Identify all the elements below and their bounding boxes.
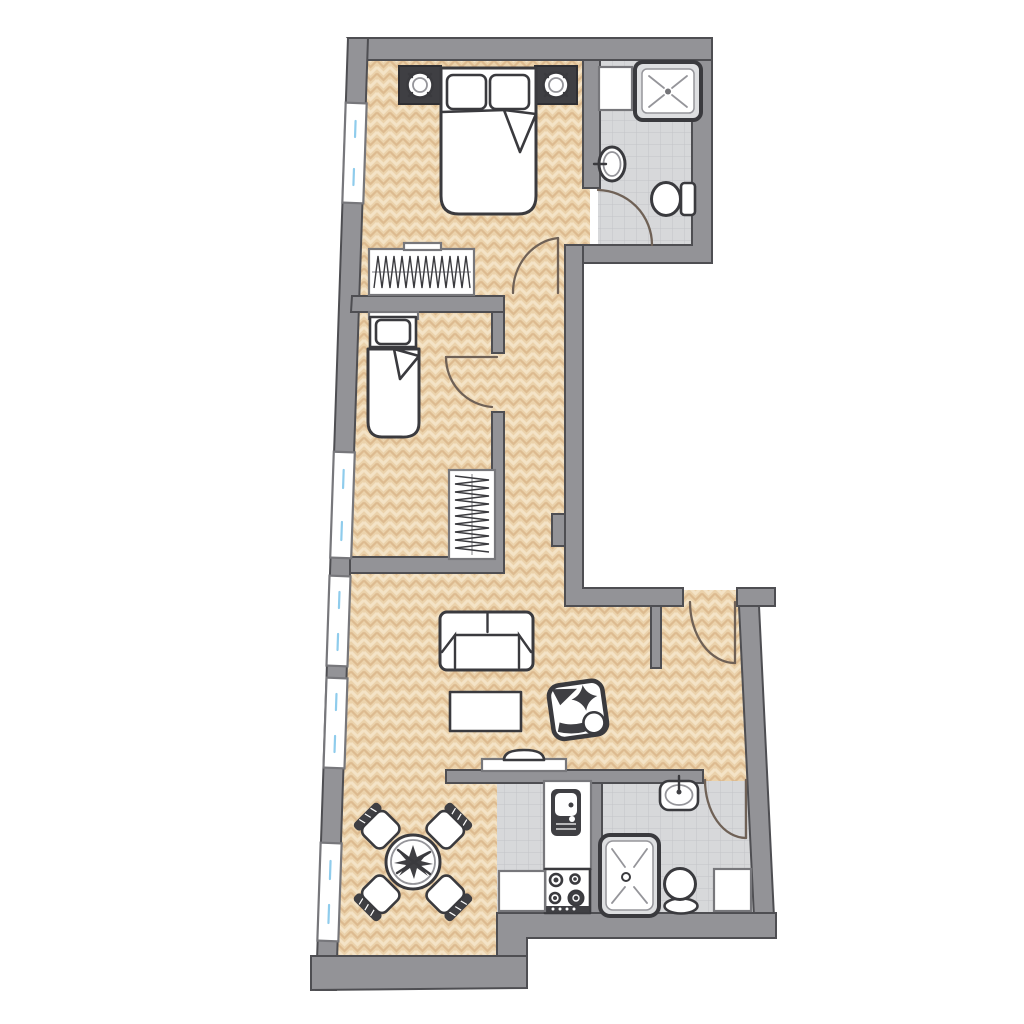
armchair <box>547 679 608 740</box>
bed-pillow-left <box>447 75 486 109</box>
window-glass-mark <box>343 470 344 488</box>
window-dining <box>317 843 341 942</box>
wall-bottom-living <box>311 956 527 990</box>
sink-drain <box>677 790 682 795</box>
bed-pillow-right <box>490 75 529 109</box>
burner-4 <box>569 891 584 906</box>
shower-drain <box>622 873 630 881</box>
stove <box>545 869 590 913</box>
sink-basin <box>555 793 577 816</box>
bed-pillow <box>376 320 410 344</box>
window-living-1 <box>326 576 350 667</box>
burner-2-center <box>573 877 577 881</box>
sink-drain <box>569 803 574 808</box>
window-living-2 <box>323 678 347 769</box>
stove-knob <box>552 908 555 911</box>
wall-hallway-east <box>565 245 683 606</box>
wardrobe-handle <box>404 243 441 250</box>
burner-3-center <box>553 896 557 900</box>
bathroom-cabinet <box>714 869 751 911</box>
sink-faucet <box>569 816 575 822</box>
tv-icon <box>504 750 544 760</box>
double-bed <box>441 68 536 214</box>
wall-bedroom2-east-stub <box>492 312 504 353</box>
wall-entry-partial <box>651 606 661 668</box>
nightstand-left <box>399 66 441 104</box>
window-glass-mark <box>338 634 339 650</box>
window-frame <box>323 678 347 769</box>
window-glass-mark <box>330 861 331 879</box>
stove-knob <box>559 908 562 911</box>
window-bedroom-2 <box>330 452 355 559</box>
floor-plan: Apartment floor plan <box>0 0 1024 1024</box>
wardrobe-bedroom-2 <box>449 470 495 559</box>
window-frame <box>317 843 341 942</box>
wall-top <box>348 38 712 60</box>
stove-knob <box>566 908 569 911</box>
sink-bottom-bathroom <box>660 776 698 810</box>
window-glass-mark <box>355 121 356 137</box>
shower-bottom-bathroom <box>600 835 659 916</box>
single-bed <box>368 312 419 437</box>
toilet-bowl <box>652 183 681 216</box>
window-glass-mark <box>336 694 337 710</box>
wall-hallway-pillar <box>552 514 565 546</box>
wall-bedroom1-bathroom-divider <box>583 60 600 188</box>
window-bedroom-1 <box>342 103 366 204</box>
toilet-top-bathroom <box>652 183 696 216</box>
toilet-bottom-bathroom <box>665 869 698 914</box>
window-frame <box>342 103 366 204</box>
window-frame <box>330 452 355 559</box>
window-glass-mark <box>353 169 354 185</box>
window-glass-mark <box>335 736 336 752</box>
shower <box>635 62 701 120</box>
shower-drain <box>665 89 671 95</box>
sofa <box>440 612 533 670</box>
window-glass-mark <box>341 522 342 540</box>
toilet-tank <box>681 183 695 215</box>
stove-knob <box>573 908 576 911</box>
wall-bottom-kitchen-bath <box>497 913 776 958</box>
dining-table <box>386 835 440 889</box>
wall-entry-jamb-top <box>737 588 775 606</box>
window-glass-mark <box>339 592 340 608</box>
window-glass-mark <box>328 905 329 923</box>
window-frame <box>326 576 350 667</box>
coffee-table <box>450 692 521 731</box>
wall-bedroom-divider <box>351 296 504 312</box>
floor-plan-canvas: Apartment floor plan <box>0 0 1024 1024</box>
nightstand-right <box>535 66 577 104</box>
toilet-bowl <box>665 869 696 900</box>
bathroom-cabinet <box>599 67 632 110</box>
kitchen-sink <box>551 789 581 836</box>
burner-1-center <box>554 878 559 883</box>
round-pillow <box>582 711 606 735</box>
kitchen-cabinet <box>499 871 545 911</box>
wardrobe-bedroom-1 <box>369 243 474 295</box>
